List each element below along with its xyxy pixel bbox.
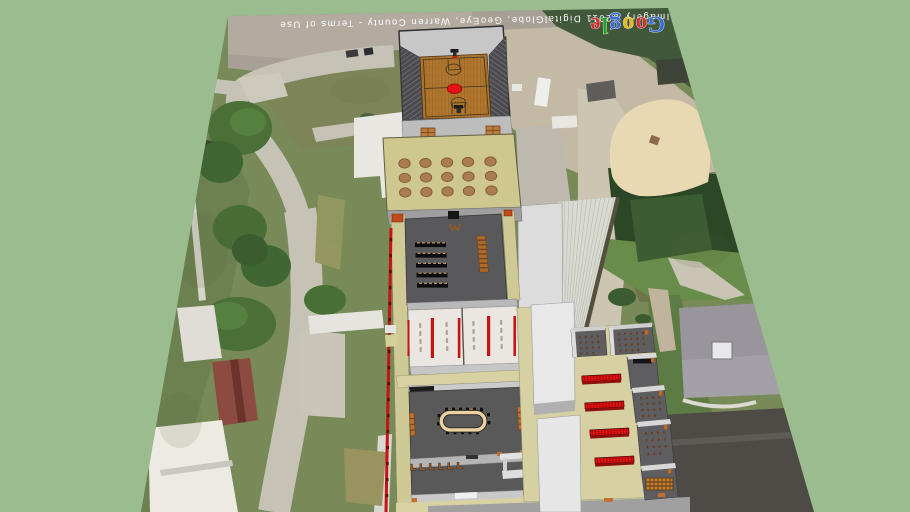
svg-text:o: o [635, 12, 647, 37]
svg-text:G: G [647, 12, 665, 37]
svg-text:g: g [609, 13, 621, 38]
svg-text:e: e [590, 13, 601, 38]
svg-text:o: o [622, 12, 634, 37]
svg-text:l: l [602, 13, 609, 38]
